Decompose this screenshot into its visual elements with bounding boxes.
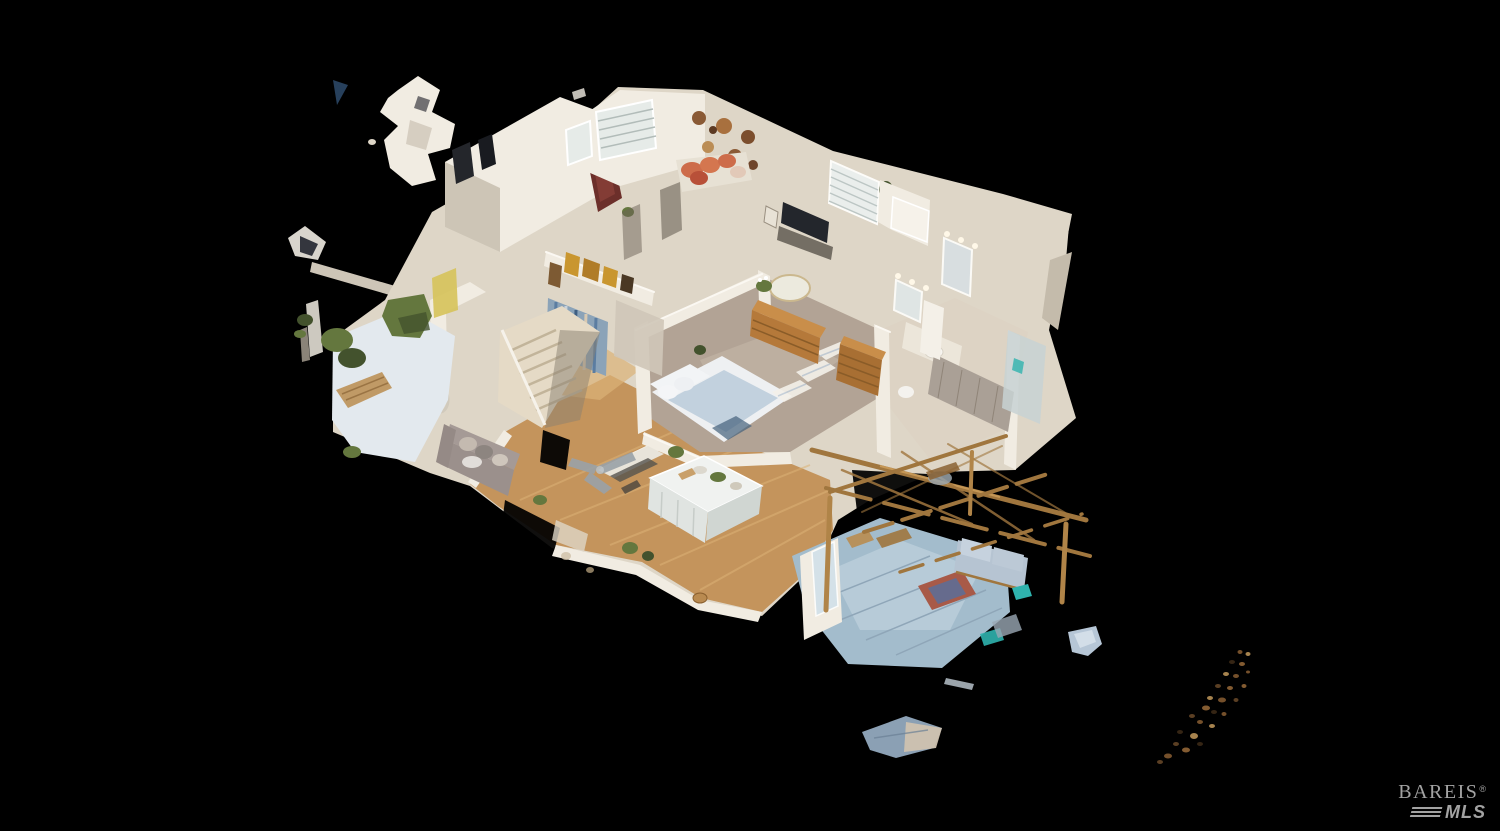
watermark-sub-row: MLS	[1398, 803, 1486, 821]
point-cloud-speckles	[1157, 650, 1251, 764]
watermark-brand: BAREIS	[1398, 781, 1478, 803]
watermark-registered-mark: ®	[1479, 784, 1486, 794]
mirror	[770, 275, 810, 301]
watermark-sub-brand: MLS	[1445, 803, 1486, 821]
watermark-brand-row: BAREIS®	[1398, 782, 1486, 802]
watermark-speed-bars-icon	[1410, 807, 1443, 818]
dollhouse-model[interactable]	[0, 0, 1500, 831]
tour-canvas[interactable]: BAREIS® MLS	[0, 0, 1500, 831]
mls-watermark: BAREIS® MLS	[1398, 782, 1486, 821]
